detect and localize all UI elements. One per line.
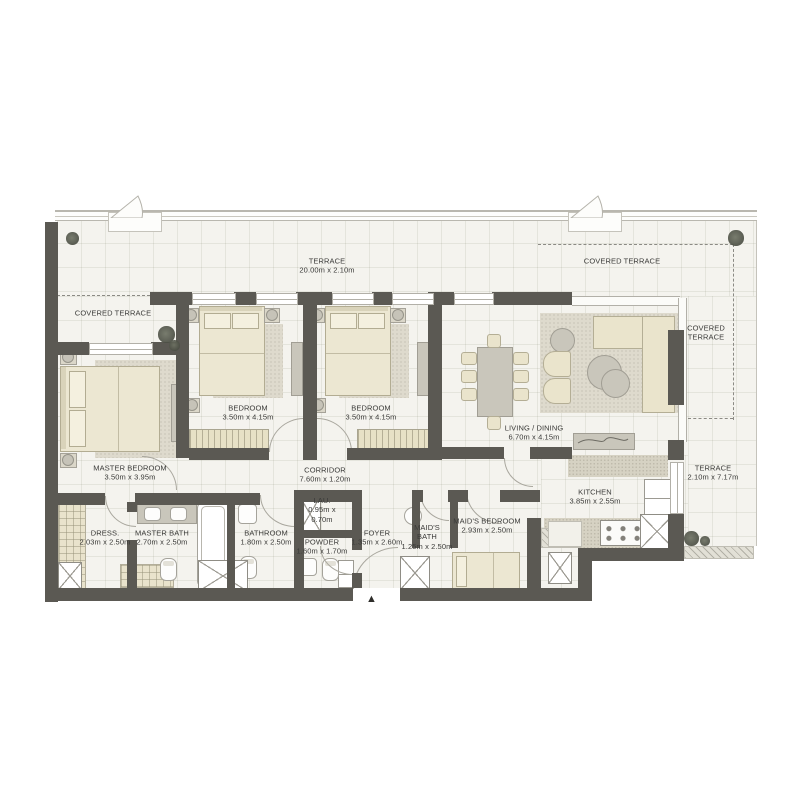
room-label-bathroom: BATHROOM1.80m x 2.50m [241,529,292,548]
glass-door [572,296,680,306]
room-label-corridor: CORRIDOR7.60m x 1.20m [300,466,351,485]
wall-segment [527,518,541,601]
room-label-covered-terrace-right: COVERED TERRACE [682,324,730,343]
bed [199,306,265,396]
wall-segment [668,440,684,460]
coffee-table [601,369,630,398]
room-dims: 2.93m x 2.50m [453,526,520,535]
room-name: TERRACE [688,464,739,473]
wall-segment [45,342,89,355]
room-dims: 2.70m x 2.50m [135,538,189,547]
room-dims: 1.80m x 2.50m [241,538,292,547]
room-name: COVERED TERRACE [682,324,730,343]
room-name: BEDROOM [346,404,397,413]
lamp [62,454,74,466]
room-dims: 1.25m x 2.50m [402,542,453,551]
wall-segment [347,448,435,460]
wall-segment [578,548,684,561]
dashed-boundary [538,244,733,246]
wall-segment [45,588,353,601]
room-dims: 2.10m x 7.17m [688,473,739,482]
dashed-boundary [733,244,735,420]
room-name: LAU. [306,496,339,505]
bed [325,306,391,396]
room-label-maids-bedroom: MAID'S BEDROOM2.93m x 2.50m [453,517,520,536]
room-dims: 1.60m x 1.70m [297,547,348,556]
room-label-maids-bath: MAID'S BATH1.25m x 2.50m [402,523,453,551]
room-name: COVERED TERRACE [75,308,151,317]
dining-chair [461,370,477,383]
dining-chair [513,370,529,383]
bed-headboard [200,307,262,311]
window [256,293,298,305]
vanity [137,502,197,524]
room-dims: 6.70m x 4.15m [505,433,564,442]
room-label-terrace-right: TERRACE2.10m x 7.17m [688,464,739,483]
wall-segment [442,447,504,459]
bed-pillow [69,371,86,408]
bed-pillow [204,313,231,329]
room-name: POWDER [297,538,348,547]
bed-pillow [358,313,385,329]
room-label-dress: DRESS.2.03m x 2.50m [80,529,131,548]
room-label-master-bath: MASTER BATH2.70m x 2.50m [135,529,189,548]
lamp [266,309,278,321]
room-dims: 3.50m x 4.15m [223,413,274,422]
room-name: FOYER [352,529,403,538]
wall-segment [668,514,684,548]
room-dims: 3.50m x 4.15m [346,413,397,422]
dashed-boundary [688,418,733,420]
maids-bed [452,552,520,590]
room-label-covered-terrace-top-right: COVERED TERRACE [584,256,660,265]
room-dims: 3.50m x 3.95m [93,473,167,482]
room-dims: 2.03m x 2.50m [80,538,131,547]
wall-segment [428,292,442,460]
room-label-bedroom-2: BEDROOM3.50m x 4.15m [346,404,397,423]
bed-fold-line [326,353,390,354]
side-table [550,328,575,353]
terrace-edge-hatch [684,546,754,559]
room-dims: 7.60m x 1.20m [300,475,351,484]
sink [238,504,257,524]
wall-segment [303,292,317,460]
tv-icon [575,434,631,446]
wall-segment [135,493,223,505]
plant-icon [728,230,744,246]
room-dims: 0.95m x 0.70m [306,505,339,524]
bed-pillow [330,313,357,329]
plant-icon [66,232,79,245]
dining-chair [487,416,501,430]
room-label-covered-terrace-left: COVERED TERRACE [75,308,151,317]
room-name: CORRIDOR [300,466,351,475]
room-label-powder: POWDER1.60m x 1.70m [297,538,348,557]
room-name: MASTER BEDROOM [93,464,167,473]
room-name: MASTER BATH [135,529,189,538]
bed-headboard [326,307,388,311]
room-label-terrace-top: TERRACE20.00m x 2.10m [299,257,354,276]
plant-icon [700,536,710,546]
dresser [291,342,303,396]
room-name: DRESS. [80,529,131,538]
toilet [160,558,177,581]
plant-icon [684,531,699,546]
window [392,293,434,305]
dining-chair [461,388,477,401]
armchair [543,378,571,404]
window [332,293,374,305]
dining-chair [461,352,477,365]
window [454,293,494,305]
sink [170,507,187,521]
room-name: LIVING / DINING [505,424,564,433]
window [670,462,684,514]
bed-pillow [69,410,86,447]
room-label-master-bedroom: MASTER BEDROOM3.50m x 3.95m [93,464,167,483]
armchair [543,351,571,377]
bed-pillow [456,556,467,587]
floor-plan: ▲ TERRACE20.00m x 2.10m COVERED TERRACE … [0,0,800,800]
sink [144,507,161,521]
wall-segment [372,292,392,305]
foyer-closet [400,556,430,590]
wall-segment [530,447,572,459]
wall-segment [400,588,590,601]
kitchen-sink [548,521,582,547]
arch-decoration-left [108,194,158,218]
room-name: MAID'S BEDROOM [453,517,520,526]
wall-segment [234,292,256,305]
plant-icon [169,340,180,351]
wall-segment [500,490,540,502]
room-dims: 3.85m x 2.55m [570,497,621,506]
room-label-foyer: FOYER1.35m x 2.60m [352,529,403,548]
wall-segment [45,222,58,602]
room-label-laundry: LAU.0.95m x 0.70m [306,496,339,524]
shaft-box [548,552,572,584]
wall-segment [492,292,572,305]
room-name: COVERED TERRACE [584,256,660,265]
bed-pillow [232,313,259,329]
arch-decoration-right [568,194,618,218]
wall-segment [352,573,362,588]
room-label-kitchen: KITCHEN3.85m x 2.55m [570,488,621,507]
room-name: MAID'S BATH [410,523,444,542]
wall-segment [45,493,105,505]
room-name: BEDROOM [223,404,274,413]
master-bed [60,366,160,452]
room-name: BATHROOM [241,529,292,538]
wall-segment [189,448,269,460]
room-name: TERRACE [299,257,354,266]
bed-fold-line [200,353,264,354]
bed-fold-line [493,553,494,589]
kitchen-counter [568,455,668,477]
window [192,293,236,305]
fridge [644,479,673,518]
dining-chair [487,334,501,348]
dining-chair [513,352,529,365]
dining-chair [513,388,529,401]
window [89,343,153,355]
wall-segment [448,490,468,502]
shaft-box [58,562,82,590]
room-dims: 1.35m x 2.60m [352,538,403,547]
wall-segment [227,502,235,588]
lamp [392,309,404,321]
room-name: KITCHEN [570,488,621,497]
wall-segment [176,292,189,458]
room-dims: 20.00m x 2.10m [299,266,354,275]
bed-headboard [61,367,66,449]
room-label-bedroom-1: BEDROOM3.50m x 4.15m [223,404,274,423]
wall-segment [127,502,137,512]
entrance-arrow: ▲ [366,594,377,605]
room-label-living-dining: LIVING / DINING6.70m x 4.15m [505,424,564,443]
bed-fold-line [118,367,119,451]
dining-table [477,347,513,417]
